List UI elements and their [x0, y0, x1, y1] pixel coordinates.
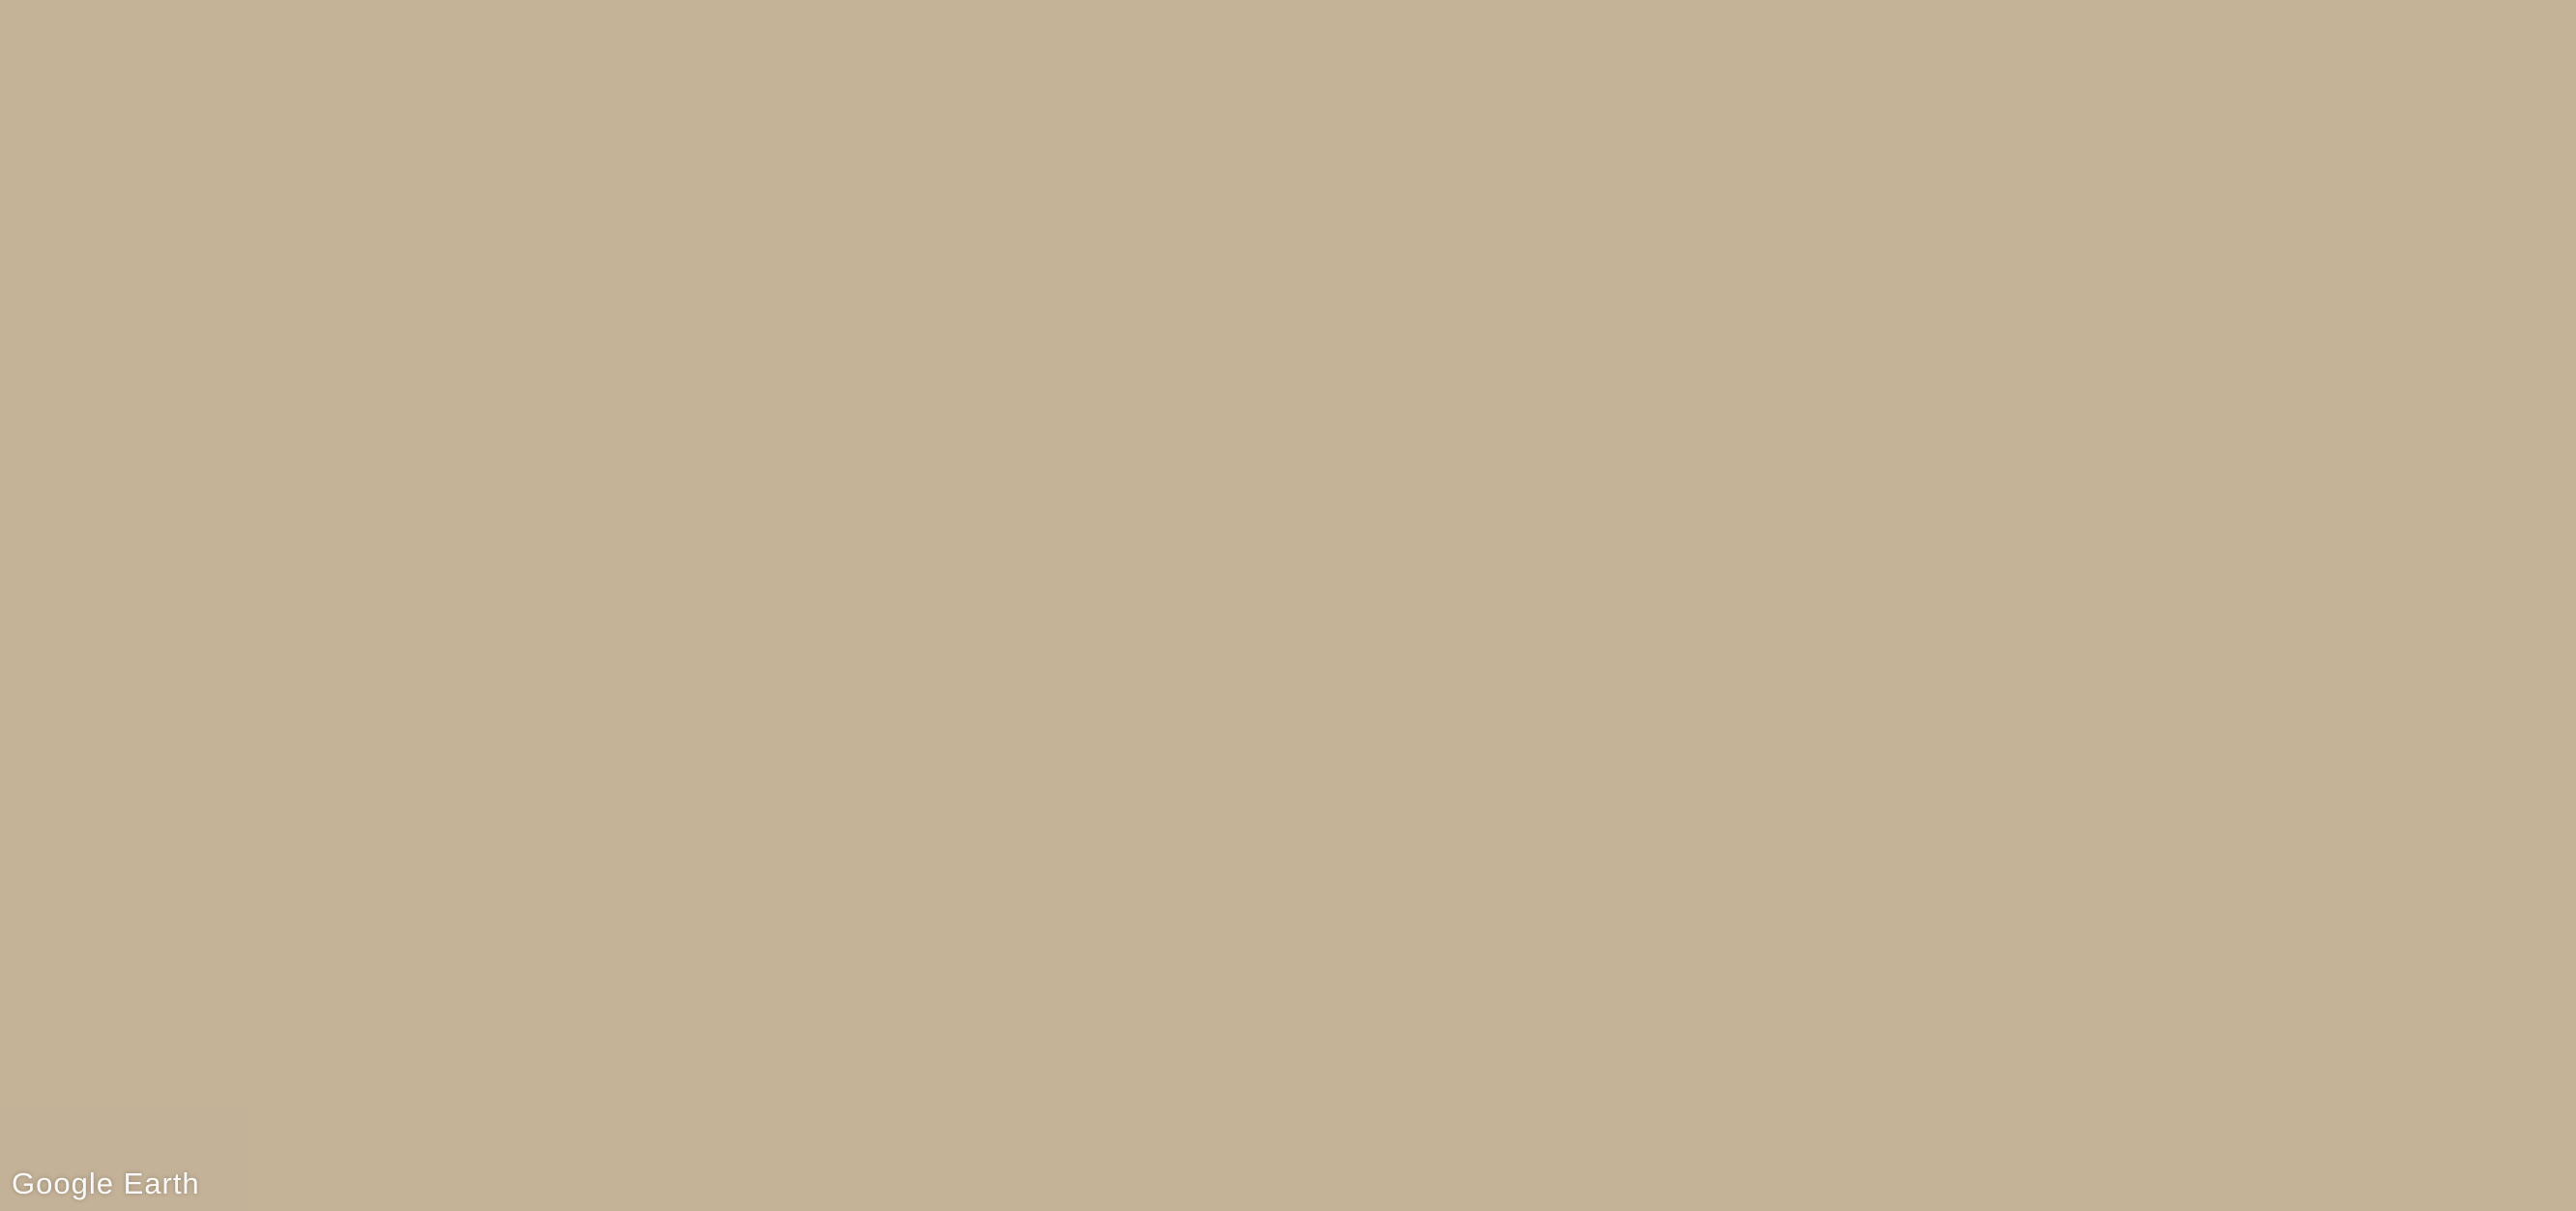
watermark-logo: Google Earth: [12, 1167, 200, 1201]
satellite-view[interactable]: Google Earth: [0, 0, 2576, 1211]
aerial-imagery: [0, 0, 2576, 1211]
